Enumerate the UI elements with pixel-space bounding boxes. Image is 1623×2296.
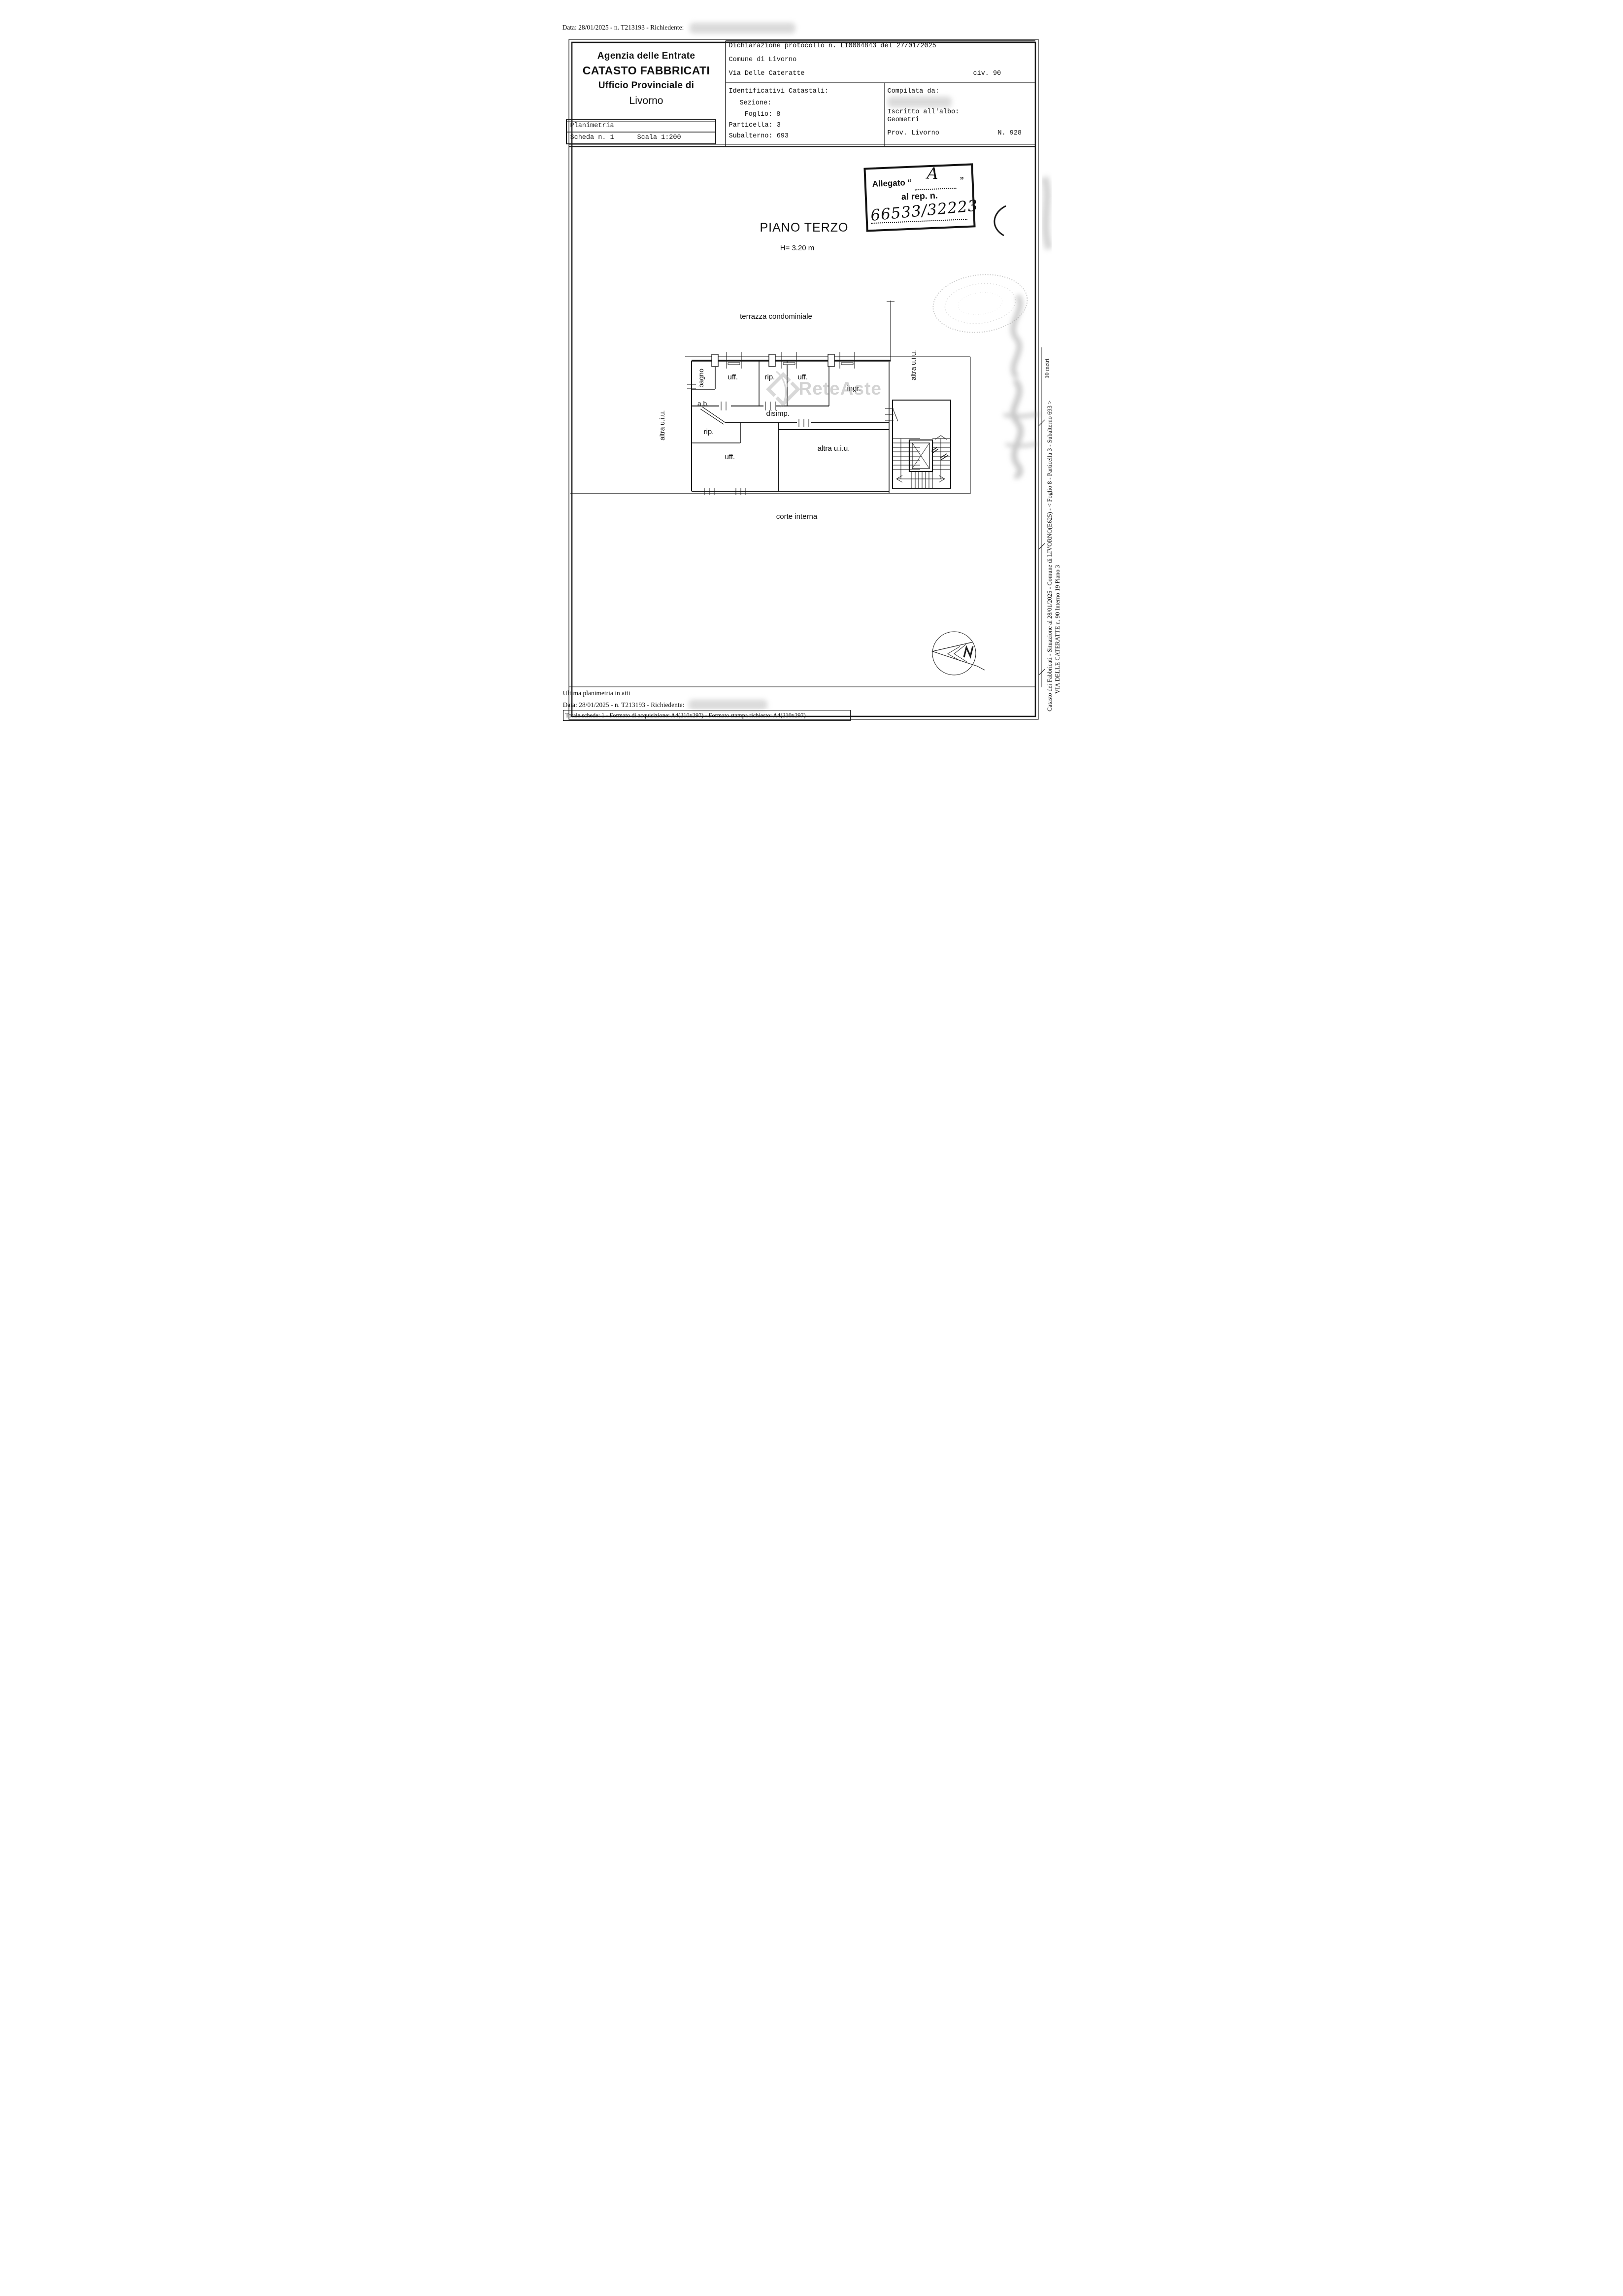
redacted-requester-name [690, 23, 795, 34]
allegato-prefix: Allegato “ [872, 178, 912, 189]
office-city: Livorno [569, 95, 724, 107]
plan-height: H= 3.20 m [736, 244, 859, 252]
prov-label: Prov. Livorno [888, 130, 939, 137]
street-line: Via Delle Cateratte [729, 70, 805, 77]
compilata-label: Compilata da: [888, 88, 939, 95]
planimetria-label: Planimetria [570, 122, 614, 130]
scale-bar [1039, 347, 1045, 687]
watermark-text: ReteAste [799, 378, 882, 399]
foglio-field: Foglio: 8 [745, 111, 781, 118]
label-bagno: bagno [697, 358, 705, 388]
label-uff-1: uff. [728, 373, 738, 381]
sezione-field: Sezione: [740, 100, 772, 107]
north-arrow-icon [932, 632, 985, 675]
label-altra-uiu-main: altra u.i.u. [797, 444, 871, 453]
albo-number: N. 928 [998, 130, 1022, 137]
comune-line: Comune di Livorno [729, 56, 797, 64]
allegato-stamp: Allegato “ A ” al rep. n. 66533/32223 [863, 163, 975, 232]
footer-data-line: Data: 28/01/2025 - n. T213193 - Richiede… [563, 701, 685, 709]
redacted-smudge-top-right [1044, 177, 1049, 249]
label-terrazza: terrazza condominiale [727, 312, 826, 321]
label-disimp: disimp. [766, 409, 790, 418]
civic-number: civ. 90 [973, 70, 1001, 77]
office-line: Ufficio Provinciale di [569, 80, 724, 91]
label-altra-uiu-right: altra u.i.u. [909, 335, 917, 380]
ultima-planimetria-note: Ultima planimetria in atti [563, 689, 630, 697]
particella-field: Particella: 3 [729, 122, 781, 129]
margin-text-line1: Catasto dei Fabbricati - Situazione al 2… [1046, 344, 1054, 711]
label-rip-1: rip. [765, 373, 775, 381]
catasto-title: CATASTO FABBRICATI [569, 64, 724, 77]
label-altra-uiu-left: altra u.i.u. [658, 395, 666, 440]
scala-label: Scala 1:200 [637, 134, 681, 141]
label-rip-2: rip. [704, 428, 714, 436]
declaration-protocol: Dichiarazione protocollo n. LI0004843 de… [729, 42, 936, 50]
floor-plan-walls [570, 301, 970, 495]
totale-schede-box: Totale schede: 1 - Formato di acquisizio… [563, 710, 851, 721]
plan-title: PIANO TERZO [738, 221, 871, 235]
request-info-line: Data: 28/01/2025 - n. T213193 - Richiede… [563, 24, 684, 32]
scheda-label: Scheda n. 1 [570, 134, 614, 141]
margin-text-line2: VIA DELLE CATERATTE n. 90 Interno 19 Pia… [1054, 538, 1061, 694]
redacted-signature [1004, 296, 1039, 476]
pen-paren-mark [994, 206, 1005, 236]
iscritto-label: Iscritto all'albo: [888, 108, 960, 116]
albo-category: Geometri [888, 116, 920, 124]
cadastral-document-page: Data: 28/01/2025 - n. T213193 - Richiede… [541, 0, 1083, 766]
redacted-technician-name [888, 97, 952, 107]
label-corte-interna: corte interna [762, 512, 831, 521]
allegato-letter-handwritten: A [927, 164, 938, 183]
redacted-footer-requester [689, 700, 767, 710]
allegato-suffix: ” [960, 175, 964, 185]
agency-name: Agenzia delle Entrate [569, 51, 724, 62]
label-uff-3: uff. [725, 453, 735, 461]
stairwell [893, 400, 951, 489]
label-ab: a.b. [693, 400, 714, 407]
identificativi-title: Identificativi Catastali: [729, 88, 829, 95]
subalterno-field: Subalterno: 693 [729, 133, 789, 140]
